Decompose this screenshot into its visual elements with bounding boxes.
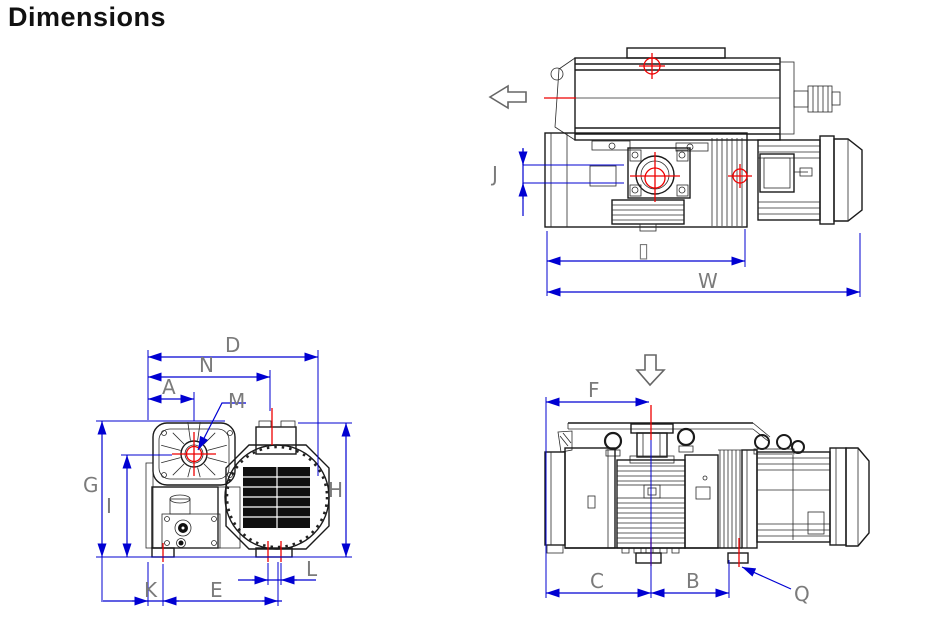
front-view-drawing: D N A M G I H (83, 333, 352, 606)
dim-label-n: N (199, 353, 214, 377)
dim-label-c: C (590, 569, 604, 593)
dim-label-g: G (83, 473, 99, 497)
dim-label-k: K (144, 578, 158, 602)
dimensions-side-view: F C B Q (546, 378, 810, 606)
dim-label-f: F (588, 378, 600, 402)
dimensions-drawing: J ▯ W (0, 0, 945, 621)
dim-label-j: J (490, 162, 498, 186)
dim-label-d: D (225, 333, 240, 357)
side-view-drawing: F C B Q (545, 355, 869, 606)
dim-label-box: ▯ (638, 238, 649, 262)
dimensions-front-view: D N A M G I H (83, 333, 352, 606)
dim-label-i: I (106, 494, 112, 518)
dim-label-w: W (698, 269, 718, 293)
dim-label-l: L (306, 557, 318, 581)
dim-label-b: B (686, 569, 700, 593)
dim-label-a: A (162, 375, 176, 399)
dim-label-q: Q (794, 582, 810, 606)
flow-left-arrow-icon (490, 86, 526, 108)
dimensions-page: Dimensions (0, 0, 945, 621)
top-view-drawing: J ▯ W (490, 48, 862, 297)
dim-label-h: H (328, 478, 343, 502)
flow-down-arrow-icon (637, 355, 664, 385)
dim-label-e: E (210, 578, 223, 602)
dim-label-m: M (228, 389, 245, 413)
